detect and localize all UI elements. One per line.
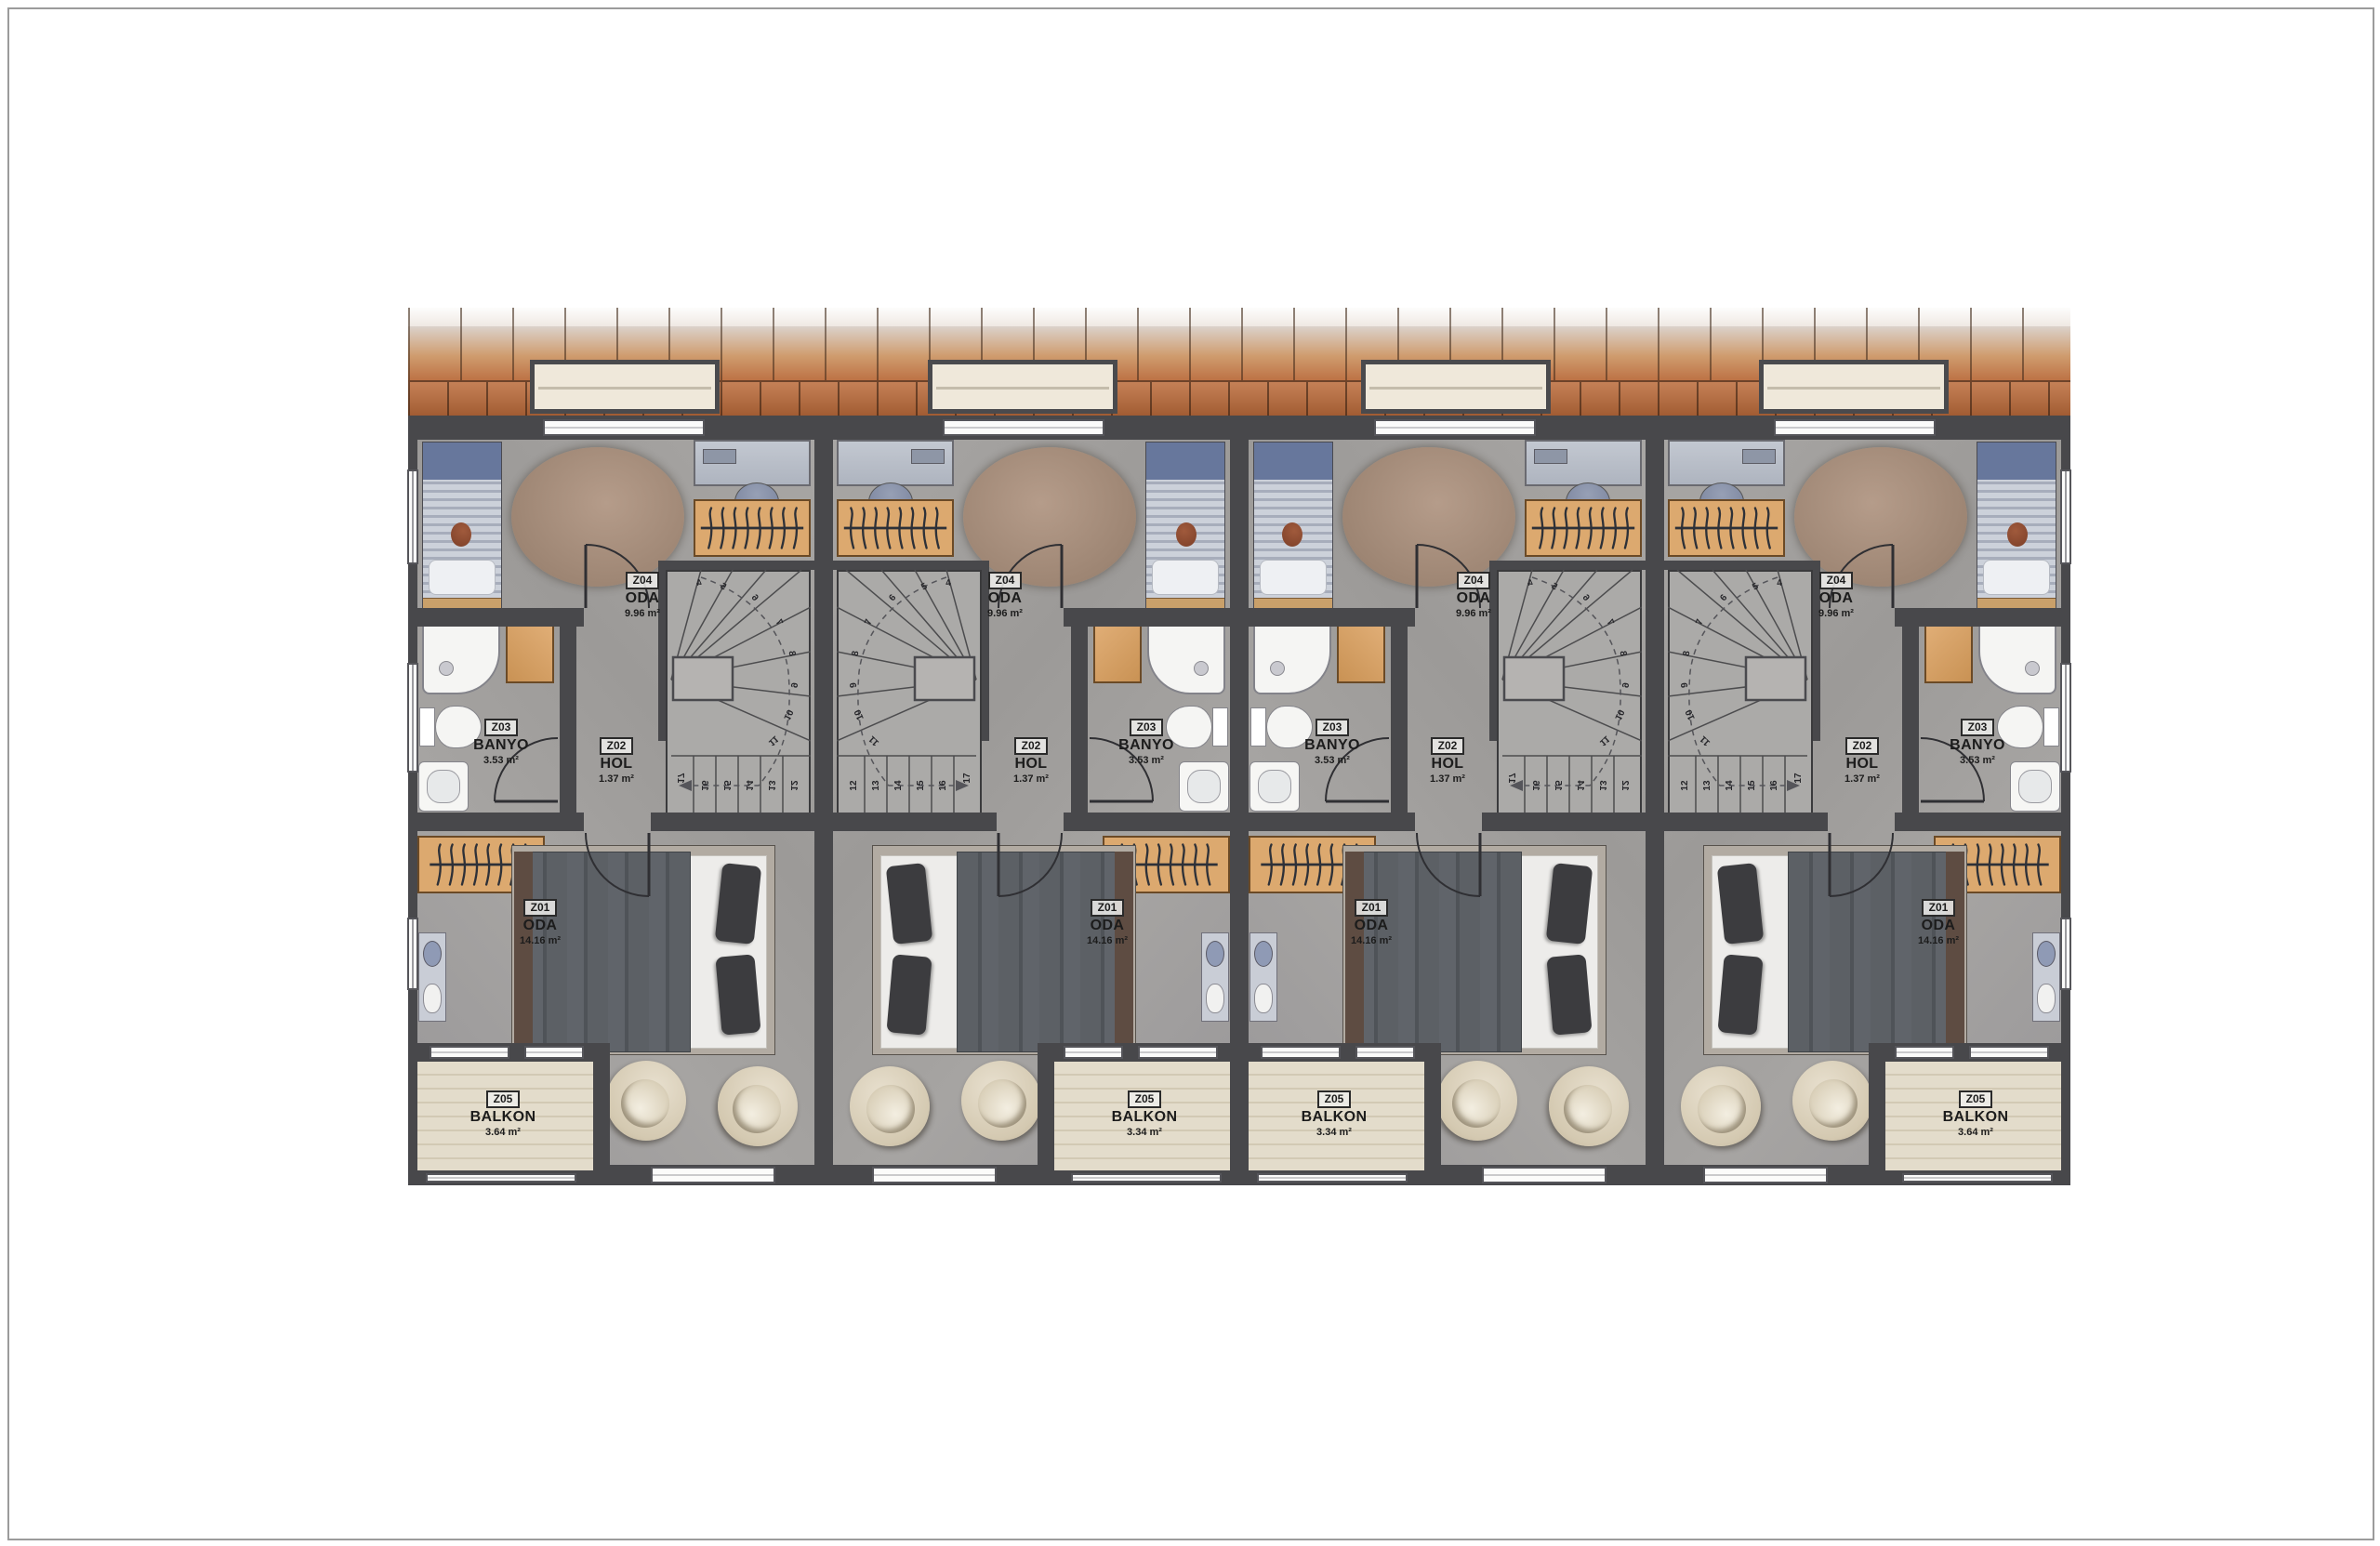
unit-1: 4567891011121314151617 [408,416,824,1185]
hangers-icon [1670,501,1783,555]
armchair [1437,1061,1517,1141]
room-label-z03: Z03 BANYO 3.53 m² [1095,719,1197,766]
stair-step-number: 6 [1576,588,1597,609]
room-name: ODA [1457,590,1491,607]
room-code: Z03 [1130,719,1164,736]
room-area: 1.37 m² [1430,773,1465,785]
stair-step-number: 8 [847,645,864,662]
room-area: 1.37 m² [1013,773,1049,785]
armchair [1681,1066,1761,1146]
dormer-window [530,360,720,414]
room-label-z01: Z01 ODA 14.16 m² [1056,899,1158,946]
door-arc [1415,831,1482,898]
room-label-z03: Z03 BANYO 3.53 m² [1281,719,1383,766]
wall [1391,608,1408,831]
wall [560,608,576,831]
stair-step-number: 17 [959,771,974,786]
room-label-z03: Z03 BANYO 3.53 m² [450,719,552,766]
room-area: 14.16 m² [1918,935,1959,946]
wall [1239,608,1415,627]
room-code: Z02 [600,737,634,755]
room-label-z01: Z01 ODA 14.16 m² [489,899,591,946]
room-name: HOL [1432,756,1464,773]
window [943,419,1104,436]
wardrobe [694,499,811,557]
pillow [1717,954,1763,1035]
wall [1064,608,1239,627]
bedroom-window [1703,1167,1828,1183]
bed-foot-throw [1946,852,1964,1050]
stair-step-number: 9 [1676,677,1693,694]
desk [1668,440,1785,486]
room-code: Z03 [1316,719,1350,736]
wall [1071,608,1088,831]
room-name: HOL [1846,756,1879,773]
room-name: BANYO [1118,737,1174,754]
stair-step-number: 5 [1745,576,1765,597]
room-code: Z02 [1431,737,1465,755]
stair-step-number: 13 [1699,778,1714,793]
wall [408,813,584,831]
room-name: BALKON [1112,1109,1178,1126]
balcony-railing-window [426,1173,576,1183]
room-name: ODA [1091,918,1125,934]
stair-step-number: 17 [1504,771,1519,786]
stair-step-number: 11 [864,731,885,752]
balcony-window [1138,1046,1218,1059]
room-area: 14.16 m² [1351,935,1392,946]
wall [814,416,824,1185]
stair-step-number: 7 [1601,613,1620,632]
room-label-z04: Z04 ODA 9.96 m² [1422,572,1525,619]
stair-step-number: 7 [859,613,879,632]
roof-ridge-lines [408,308,2070,326]
stair-step-number: 11 [1594,731,1616,752]
room-code: Z04 [1457,572,1491,589]
armchair [1792,1061,1872,1141]
stair-step-number: 5 [1544,576,1565,597]
floor-plan: 4567891011121314151617 [408,308,2070,1185]
room-code: Z05 [1128,1090,1162,1108]
stair-step-number: 15 [913,778,928,793]
room-code: Z01 [1355,899,1389,917]
balcony-railing-window [1071,1173,1222,1183]
room-code: Z03 [484,719,519,736]
wall [833,561,989,570]
wall [1902,608,1919,831]
balcony-railing-window [1902,1173,2053,1183]
room-name: BANYO [1950,737,2005,754]
room-name: ODA [1922,918,1956,934]
stair-step-number: 9 [786,677,802,694]
stair-step-number: 14 [1722,778,1737,793]
bedroom-window [872,1167,997,1183]
room-area: 1.37 m² [1844,773,1880,785]
side-window [407,469,418,564]
window [1374,419,1536,436]
bed-cushion [1176,522,1197,547]
stair-step-number: 9 [1617,677,1633,694]
room-code: Z01 [1091,899,1125,917]
pillow [886,863,933,945]
room-label-z05: Z05 BALKON 3.64 m² [435,1090,571,1138]
side-window [2060,663,2071,773]
room-label-z02: Z02 HOL 1.37 m² [1811,737,1913,785]
armchair [850,1066,930,1146]
wall [1064,813,1239,831]
room-code: Z02 [1014,737,1049,755]
room-name: ODA [523,918,558,934]
wall [1664,561,1820,570]
room-area: 9.96 m² [1456,608,1491,619]
balcony-window [524,1046,584,1059]
wall [824,416,833,1185]
single-bed [1253,442,1333,613]
sink [2010,761,2060,812]
unit-3: 4567891011121314151617 [1239,416,1655,1185]
room-area: 9.96 m² [1818,608,1854,619]
single-bed [1145,442,1225,613]
window [543,419,705,436]
room-code: Z04 [626,572,660,589]
stair-step-number: 16 [935,778,950,793]
balcony-window [1261,1046,1341,1059]
room-code: Z02 [1845,737,1880,755]
room-name: BALKON [470,1109,536,1126]
room-area: 9.96 m² [987,608,1023,619]
dormer-window [1361,360,1551,414]
stair-step-number: 7 [1690,613,1710,632]
sink [1179,761,1229,812]
stair-step-number: 15 [720,778,734,793]
wall [1646,416,1655,1185]
stair-step-number: 9 [845,677,862,694]
room-name: ODA [626,590,660,607]
bed-foot-throw [1345,852,1364,1050]
stair-step-number: 12 [1618,778,1633,793]
stair-step-number: 8 [1678,645,1695,662]
stair-step-number: 14 [742,778,757,793]
desk [837,440,954,486]
floor-plan-page: { "plan": { "type": "architectural-floor… [0,0,2380,1546]
pillow [1717,863,1765,945]
balcony-railing-window [1257,1173,1408,1183]
stair-step-number: 5 [713,576,734,597]
room-label-z02: Z02 HOL 1.37 m² [980,737,1082,785]
wall [1655,416,1664,1185]
side-window [2060,918,2071,990]
wall [408,608,584,627]
balcony-window [1064,1046,1123,1059]
desk [694,440,811,486]
building: 4567891011121314151617 [408,416,2070,1185]
room-code: Z05 [1959,1090,1993,1108]
armchair [606,1061,686,1141]
stair-step-number: 6 [745,588,766,609]
room-area: 3.34 m² [1316,1127,1352,1138]
stair-step-number: 13 [868,778,883,793]
room-label-z04: Z04 ODA 9.96 m² [591,572,694,619]
door-arc [1828,831,1895,898]
stair-step-number: 5 [914,576,934,597]
stair-step-number: 10 [778,705,798,724]
room-code: Z05 [486,1090,521,1108]
room-area: 3.53 m² [1315,755,1350,766]
pillow [715,863,762,945]
side-window [407,663,418,773]
pillow [715,954,760,1035]
bedroom-window [1482,1167,1606,1183]
bed-foot-throw [1115,852,1133,1050]
side-window [407,918,418,990]
balcony-window [1355,1046,1415,1059]
balcony-window [1895,1046,1954,1059]
room-area: 3.53 m² [1129,755,1164,766]
room-label-z05: Z05 BALKON 3.34 m² [1266,1090,1402,1138]
room-label-z01: Z01 ODA 14.16 m² [1320,899,1422,946]
stair-step-number: 15 [1551,778,1566,793]
pillow [1546,863,1593,945]
room-name: HOL [601,756,633,773]
armchair [718,1066,798,1146]
room-name: BALKON [1302,1109,1368,1126]
bedroom-window [651,1167,775,1183]
stair-step-number: 14 [1573,778,1588,793]
hangers-icon [839,501,952,555]
single-bed [422,442,502,613]
room-code: Z01 [523,899,558,917]
room-area: 9.96 m² [625,608,660,619]
wall [1230,416,1239,1185]
unit-2: 4567891011121314151617 [824,416,1239,1185]
armchair [961,1061,1041,1141]
sink [418,761,469,812]
stair-step-number: 6 [1713,588,1735,609]
stair-step-number: 10 [1680,705,1699,724]
dormer-window [1759,360,1949,414]
room-code: Z04 [988,572,1023,589]
vanity [418,932,446,1022]
bed-cushion [451,522,471,547]
stair-step-number: 12 [1677,778,1692,793]
balcony-window [430,1046,509,1059]
stair-step-number: 11 [1695,731,1716,752]
armchair [1549,1066,1629,1146]
room-name: ODA [988,590,1023,607]
room-area: 3.34 m² [1127,1127,1162,1138]
bed-cushion [1282,522,1302,547]
stair-step-number: 13 [1595,778,1610,793]
room-label-z05: Z05 BALKON 3.64 m² [1908,1090,2043,1138]
room-label-z03: Z03 BANYO 3.53 m² [1926,719,2029,766]
room-area: 3.64 m² [1958,1127,1993,1138]
room-name: BANYO [1304,737,1360,754]
room-code: Z01 [1922,899,1956,917]
room-code: Z04 [1819,572,1854,589]
room-label-z02: Z02 HOL 1.37 m² [1396,737,1499,785]
stair-step-number: 8 [1615,645,1632,662]
room-area: 1.37 m² [599,773,634,785]
door-arc [997,831,1064,898]
window [1774,419,1936,436]
room-code: Z05 [1317,1090,1352,1108]
wardrobe [1668,499,1785,557]
room-area: 3.53 m² [1960,755,1995,766]
dormer-window [928,360,1117,414]
door-arc [584,831,651,898]
sink [1249,761,1300,812]
stair-step-number: 10 [1609,705,1629,724]
single-bed [1977,442,2056,613]
stair-step-number: 16 [1766,778,1781,793]
wall [1489,561,1646,570]
pillow [886,954,932,1035]
side-window [2060,469,2071,564]
stair-step-number: 12 [787,778,801,793]
room-label-z02: Z02 HOL 1.37 m² [565,737,668,785]
stair-step-number: 14 [891,778,906,793]
wall [1895,608,2070,627]
room-area: 3.53 m² [483,755,519,766]
vanity [1249,932,1277,1022]
stair-step-number: 16 [1528,778,1543,793]
wall [658,561,814,570]
wall [1895,813,2070,831]
room-area: 14.16 m² [520,935,561,946]
wardrobe [1525,499,1642,557]
stair-step-number: 15 [1744,778,1759,793]
wardrobe [837,499,954,557]
room-label-z01: Z01 ODA 14.16 m² [1887,899,1990,946]
stair-step-number: 12 [846,778,861,793]
stair-step-number: 11 [763,731,785,752]
bed-cushion [2007,522,2028,547]
room-label-z04: Z04 ODA 9.96 m² [954,572,1056,619]
pillow [1546,954,1592,1035]
vanity [2032,932,2060,1022]
stair-step-number: 8 [784,645,800,662]
room-name: BALKON [1943,1109,2009,1126]
hangers-icon [1527,501,1640,555]
desk [1525,440,1642,486]
stair-step-number: 13 [764,778,779,793]
room-name: HOL [1015,756,1048,773]
stair-step-number: 7 [770,613,789,632]
vanity [1201,932,1229,1022]
room-code: Z03 [1961,719,1995,736]
wall [1239,416,1249,1185]
room-label-z05: Z05 BALKON 3.34 m² [1077,1090,1212,1138]
balcony-window [1969,1046,2049,1059]
bed-foot-throw [514,852,533,1050]
room-area: 3.64 m² [485,1127,521,1138]
room-name: BANYO [473,737,529,754]
room-area: 14.16 m² [1087,935,1128,946]
stair-step-number: 17 [1791,771,1805,786]
room-name: ODA [1819,590,1854,607]
room-name: ODA [1355,918,1389,934]
room-label-z04: Z04 ODA 9.96 m² [1785,572,1887,619]
unit-4: 4567891011121314151617 [1655,416,2070,1185]
stair-step-number: 16 [697,778,712,793]
stair-step-number: 6 [882,588,904,609]
wall [1239,813,1415,831]
stair-step-number: 17 [673,771,688,786]
stair-step-number: 10 [849,705,868,724]
hangers-icon [695,501,809,555]
